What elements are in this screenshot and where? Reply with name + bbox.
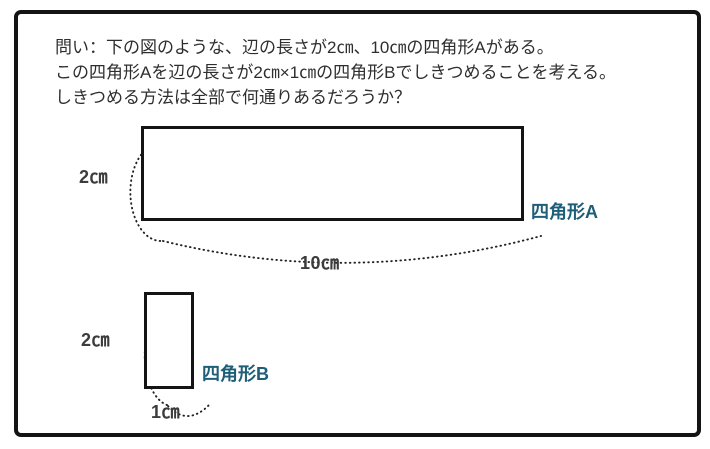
question-line-2: この四角形Aを辺の長さが2㎝×1㎝の四角形Bでしきつめることを考える。	[55, 60, 710, 85]
question-line-3: しきつめる方法は全部で何通りあるだろうか？	[55, 85, 710, 110]
question-line-1: 問い：下の図のような、辺の長さが2㎝、10㎝の四角形Aがある。	[55, 35, 710, 60]
rect-a-width-brace-arc	[163, 236, 541, 263]
rect-b-name-label: 四角形B	[202, 360, 269, 386]
question-text: 問い：下の図のような、辺の長さが2㎝、10㎝の四角形Aがある。 この四角形Aを辺…	[55, 35, 710, 110]
rectangle-a-shape	[141, 126, 524, 221]
rect-a-width-label: 10㎝	[300, 249, 340, 275]
rect-a-name-label: 四角形A	[531, 198, 598, 224]
rect-b-height-label: 2㎝	[81, 326, 110, 352]
rectangle-b-shape	[144, 292, 194, 389]
rect-a-height-label: 2㎝	[79, 163, 108, 189]
rect-b-width-label: 1㎝	[151, 398, 180, 424]
